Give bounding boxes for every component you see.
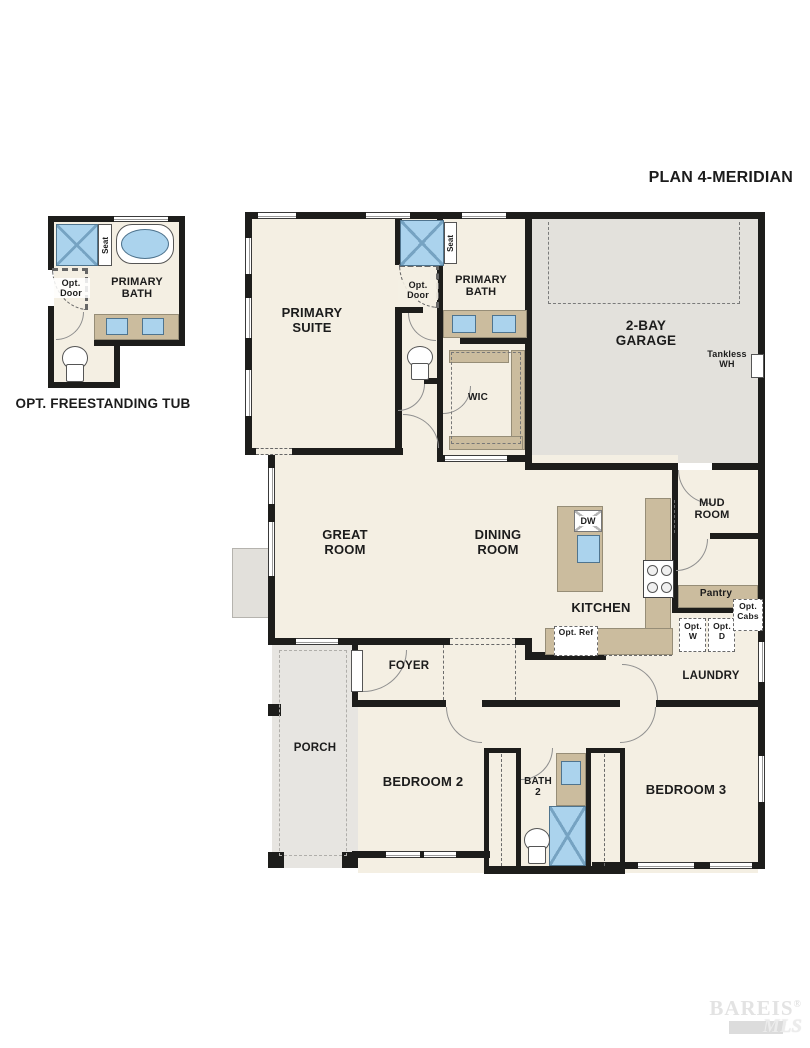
dashed-counter-line (604, 655, 672, 656)
front-door-leaf (351, 650, 363, 692)
wall (586, 748, 591, 874)
dishwasher: DW (574, 510, 602, 532)
window (245, 370, 252, 416)
window (366, 212, 410, 219)
inset-sink (142, 318, 164, 335)
primary-sink (452, 315, 476, 333)
wall (460, 338, 532, 344)
closet-rod (501, 754, 502, 866)
wall (710, 533, 758, 539)
dashed-opening (443, 645, 444, 700)
inset-wall (48, 306, 54, 388)
inset-freestanding-tub (116, 224, 174, 264)
inset-wall (114, 346, 120, 388)
dashed-opening (450, 638, 515, 645)
inset-shower (56, 224, 98, 266)
tankless-wh-label: Tankless WH (704, 349, 750, 369)
wall (482, 700, 620, 707)
registered-mark: ® (794, 999, 802, 1010)
burner (661, 565, 672, 576)
wall (620, 748, 625, 874)
garage-door-outline (548, 222, 740, 304)
bedroom2-label: BEDROOM 2 (362, 775, 484, 790)
burner (647, 582, 658, 593)
window (296, 638, 338, 645)
laundry-label: LAUNDRY (662, 670, 760, 683)
opt-dryer-label: Opt. D (710, 622, 734, 641)
wall (672, 470, 678, 533)
toilet-tank (66, 364, 84, 382)
bareis-mls-watermark: BAREIS® MLS (709, 999, 802, 1038)
inset-room-label: PRIMARY BATH (104, 276, 170, 301)
pantry-label: Pantry (690, 588, 742, 599)
bath2-tub (549, 806, 586, 866)
window (758, 756, 765, 802)
primary-sink (492, 315, 516, 333)
bath2-toilet (524, 828, 550, 864)
range-stove (643, 560, 674, 598)
wall (352, 851, 490, 858)
tankless-water-heater (751, 354, 764, 378)
wic-label: WIC (458, 392, 498, 403)
window (638, 862, 694, 869)
toilet-tank (411, 363, 429, 380)
great-room-label: GREAT ROOM (312, 528, 378, 557)
inset-wall (179, 216, 185, 346)
dashed-opening (515, 645, 516, 700)
window (245, 238, 252, 274)
bath2-label: BATH 2 (520, 776, 556, 798)
primary-toilet (407, 346, 433, 380)
inset-sink (106, 318, 128, 335)
primary-bath-label: PRIMARY BATH (448, 274, 514, 299)
opt-washer-label: Opt. W (681, 622, 705, 641)
burner (647, 565, 658, 576)
window (710, 862, 752, 869)
bath2-sink (561, 761, 581, 785)
seat-label: Seat (446, 235, 455, 252)
inset-seat-label: Seat (101, 237, 110, 254)
window (462, 212, 506, 219)
wall (484, 866, 625, 874)
window (424, 851, 456, 858)
inset-toilet (62, 346, 88, 382)
inset-caption: OPT. FREESTANDING TUB (12, 396, 194, 411)
wall (525, 463, 678, 470)
inset-wall (48, 382, 120, 388)
plan-title: PLAN 4-MERIDIAN (560, 169, 793, 187)
wall (484, 748, 521, 753)
wall (484, 748, 489, 874)
great-room-bump-out (232, 548, 272, 618)
burner (661, 582, 672, 593)
window (445, 455, 507, 462)
window (386, 851, 420, 858)
toilet-tank (528, 846, 546, 864)
opt-cabs-label: Opt. Cabs (733, 602, 763, 621)
window (268, 522, 275, 576)
watermark-suffix: MLS (763, 1016, 802, 1037)
primary-shower (400, 220, 444, 266)
bedroom3-label: BEDROOM 3 (622, 783, 750, 798)
window (268, 468, 275, 504)
garage-label: 2-BAY GARAGE (604, 318, 688, 348)
opt-door-label: Opt. Door (398, 280, 438, 300)
dashed-opening (674, 500, 675, 533)
wall (358, 700, 446, 707)
primary-shower-seat: Seat (444, 222, 457, 264)
wall (758, 212, 765, 470)
dashed-opening (256, 448, 292, 455)
floor-plan-page: PLAN 4-MERIDIAN Seat PRIMARY BATH Opt. D (0, 0, 810, 1048)
kitchen-sink (577, 535, 600, 563)
wall (358, 638, 450, 645)
foyer-label: FOYER (378, 660, 440, 673)
inset-shower-seat: Seat (98, 224, 112, 266)
mud-room-label: MUD ROOM (686, 497, 738, 522)
dining-room-label: DINING ROOM (464, 528, 532, 557)
inset-opt-door-label: Opt. Door (52, 278, 90, 298)
inset-tub-basin (121, 229, 169, 259)
porch-label: PORCH (284, 742, 346, 755)
wall (586, 748, 625, 753)
window (245, 298, 252, 338)
inset-wall (48, 216, 54, 270)
wall (656, 700, 765, 707)
dishwasher-label: DW (580, 516, 597, 526)
inset-window (114, 216, 168, 222)
kitchen-label: KITCHEN (562, 601, 640, 616)
window (258, 212, 296, 219)
closet-rod (604, 754, 605, 866)
opt-ref-label: Opt. Ref (556, 628, 596, 638)
inset-wall (94, 340, 185, 346)
wall (712, 463, 765, 470)
primary-suite-label: PRIMARY SUITE (272, 306, 352, 335)
